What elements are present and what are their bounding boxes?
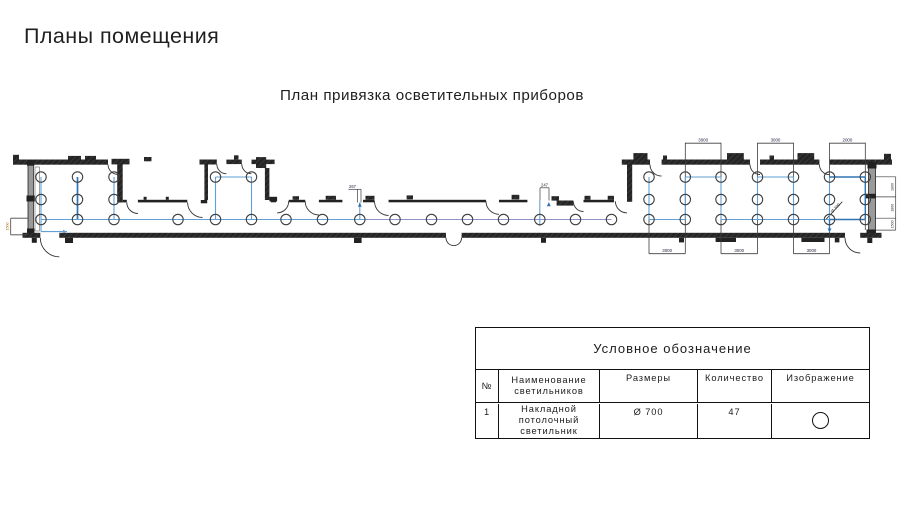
svg-text:1800: 1800 <box>890 183 894 191</box>
svg-text:267: 267 <box>349 184 357 189</box>
svg-text:2000: 2000 <box>843 138 853 143</box>
svg-text:247: 247 <box>541 183 549 188</box>
svg-text:Ø 700: Ø 700 <box>830 202 842 214</box>
svg-text:3000: 3000 <box>734 248 744 253</box>
svg-text:1500: 1500 <box>890 220 894 228</box>
svg-text:1500: 1500 <box>6 223 10 231</box>
svg-text:3000: 3000 <box>771 138 781 143</box>
svg-text:3000: 3000 <box>662 248 672 253</box>
svg-text:3000: 3000 <box>807 248 817 253</box>
svg-text:1800: 1800 <box>890 204 894 212</box>
svg-text:3000: 3000 <box>698 138 708 143</box>
